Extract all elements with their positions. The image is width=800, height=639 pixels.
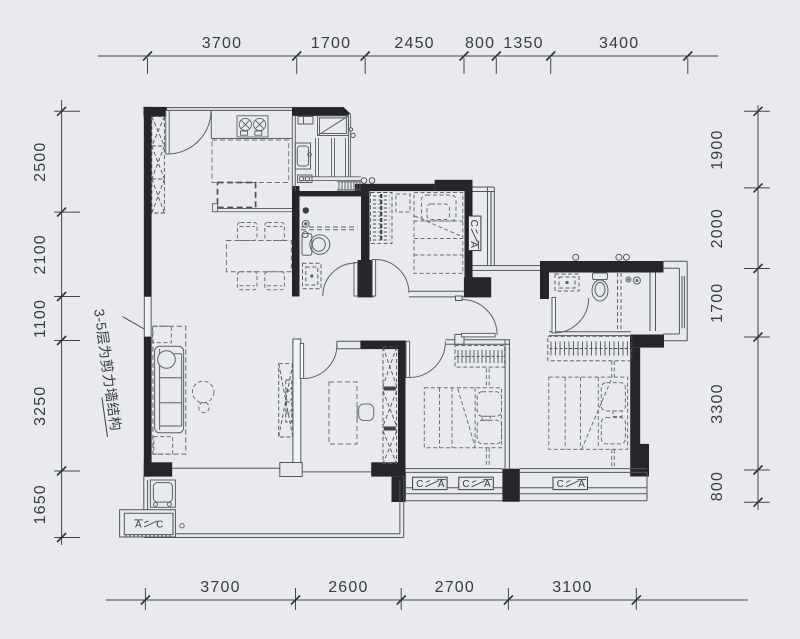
svg-text:1700: 1700 (709, 283, 726, 323)
svg-text:800: 800 (465, 35, 495, 52)
svg-text:2500: 2500 (32, 141, 49, 181)
svg-text:3300: 3300 (709, 383, 726, 423)
svg-text:2700: 2700 (435, 579, 475, 596)
svg-text:2100: 2100 (32, 234, 49, 274)
svg-text:800: 800 (709, 471, 726, 501)
svg-text:3700: 3700 (200, 579, 240, 596)
svg-text:3250: 3250 (32, 386, 49, 426)
svg-text:2450: 2450 (394, 35, 434, 52)
svg-text:3100: 3100 (552, 579, 592, 596)
svg-text:1350: 1350 (503, 35, 543, 52)
svg-text:1100: 1100 (32, 299, 49, 338)
svg-text:3700: 3700 (202, 35, 242, 52)
svg-text:2600: 2600 (328, 579, 368, 596)
svg-text:2000: 2000 (709, 208, 726, 248)
svg-text:1650: 1650 (32, 484, 49, 524)
svg-text:1700: 1700 (311, 35, 351, 52)
svg-text:1900: 1900 (709, 129, 726, 169)
svg-text:3400: 3400 (599, 35, 639, 52)
